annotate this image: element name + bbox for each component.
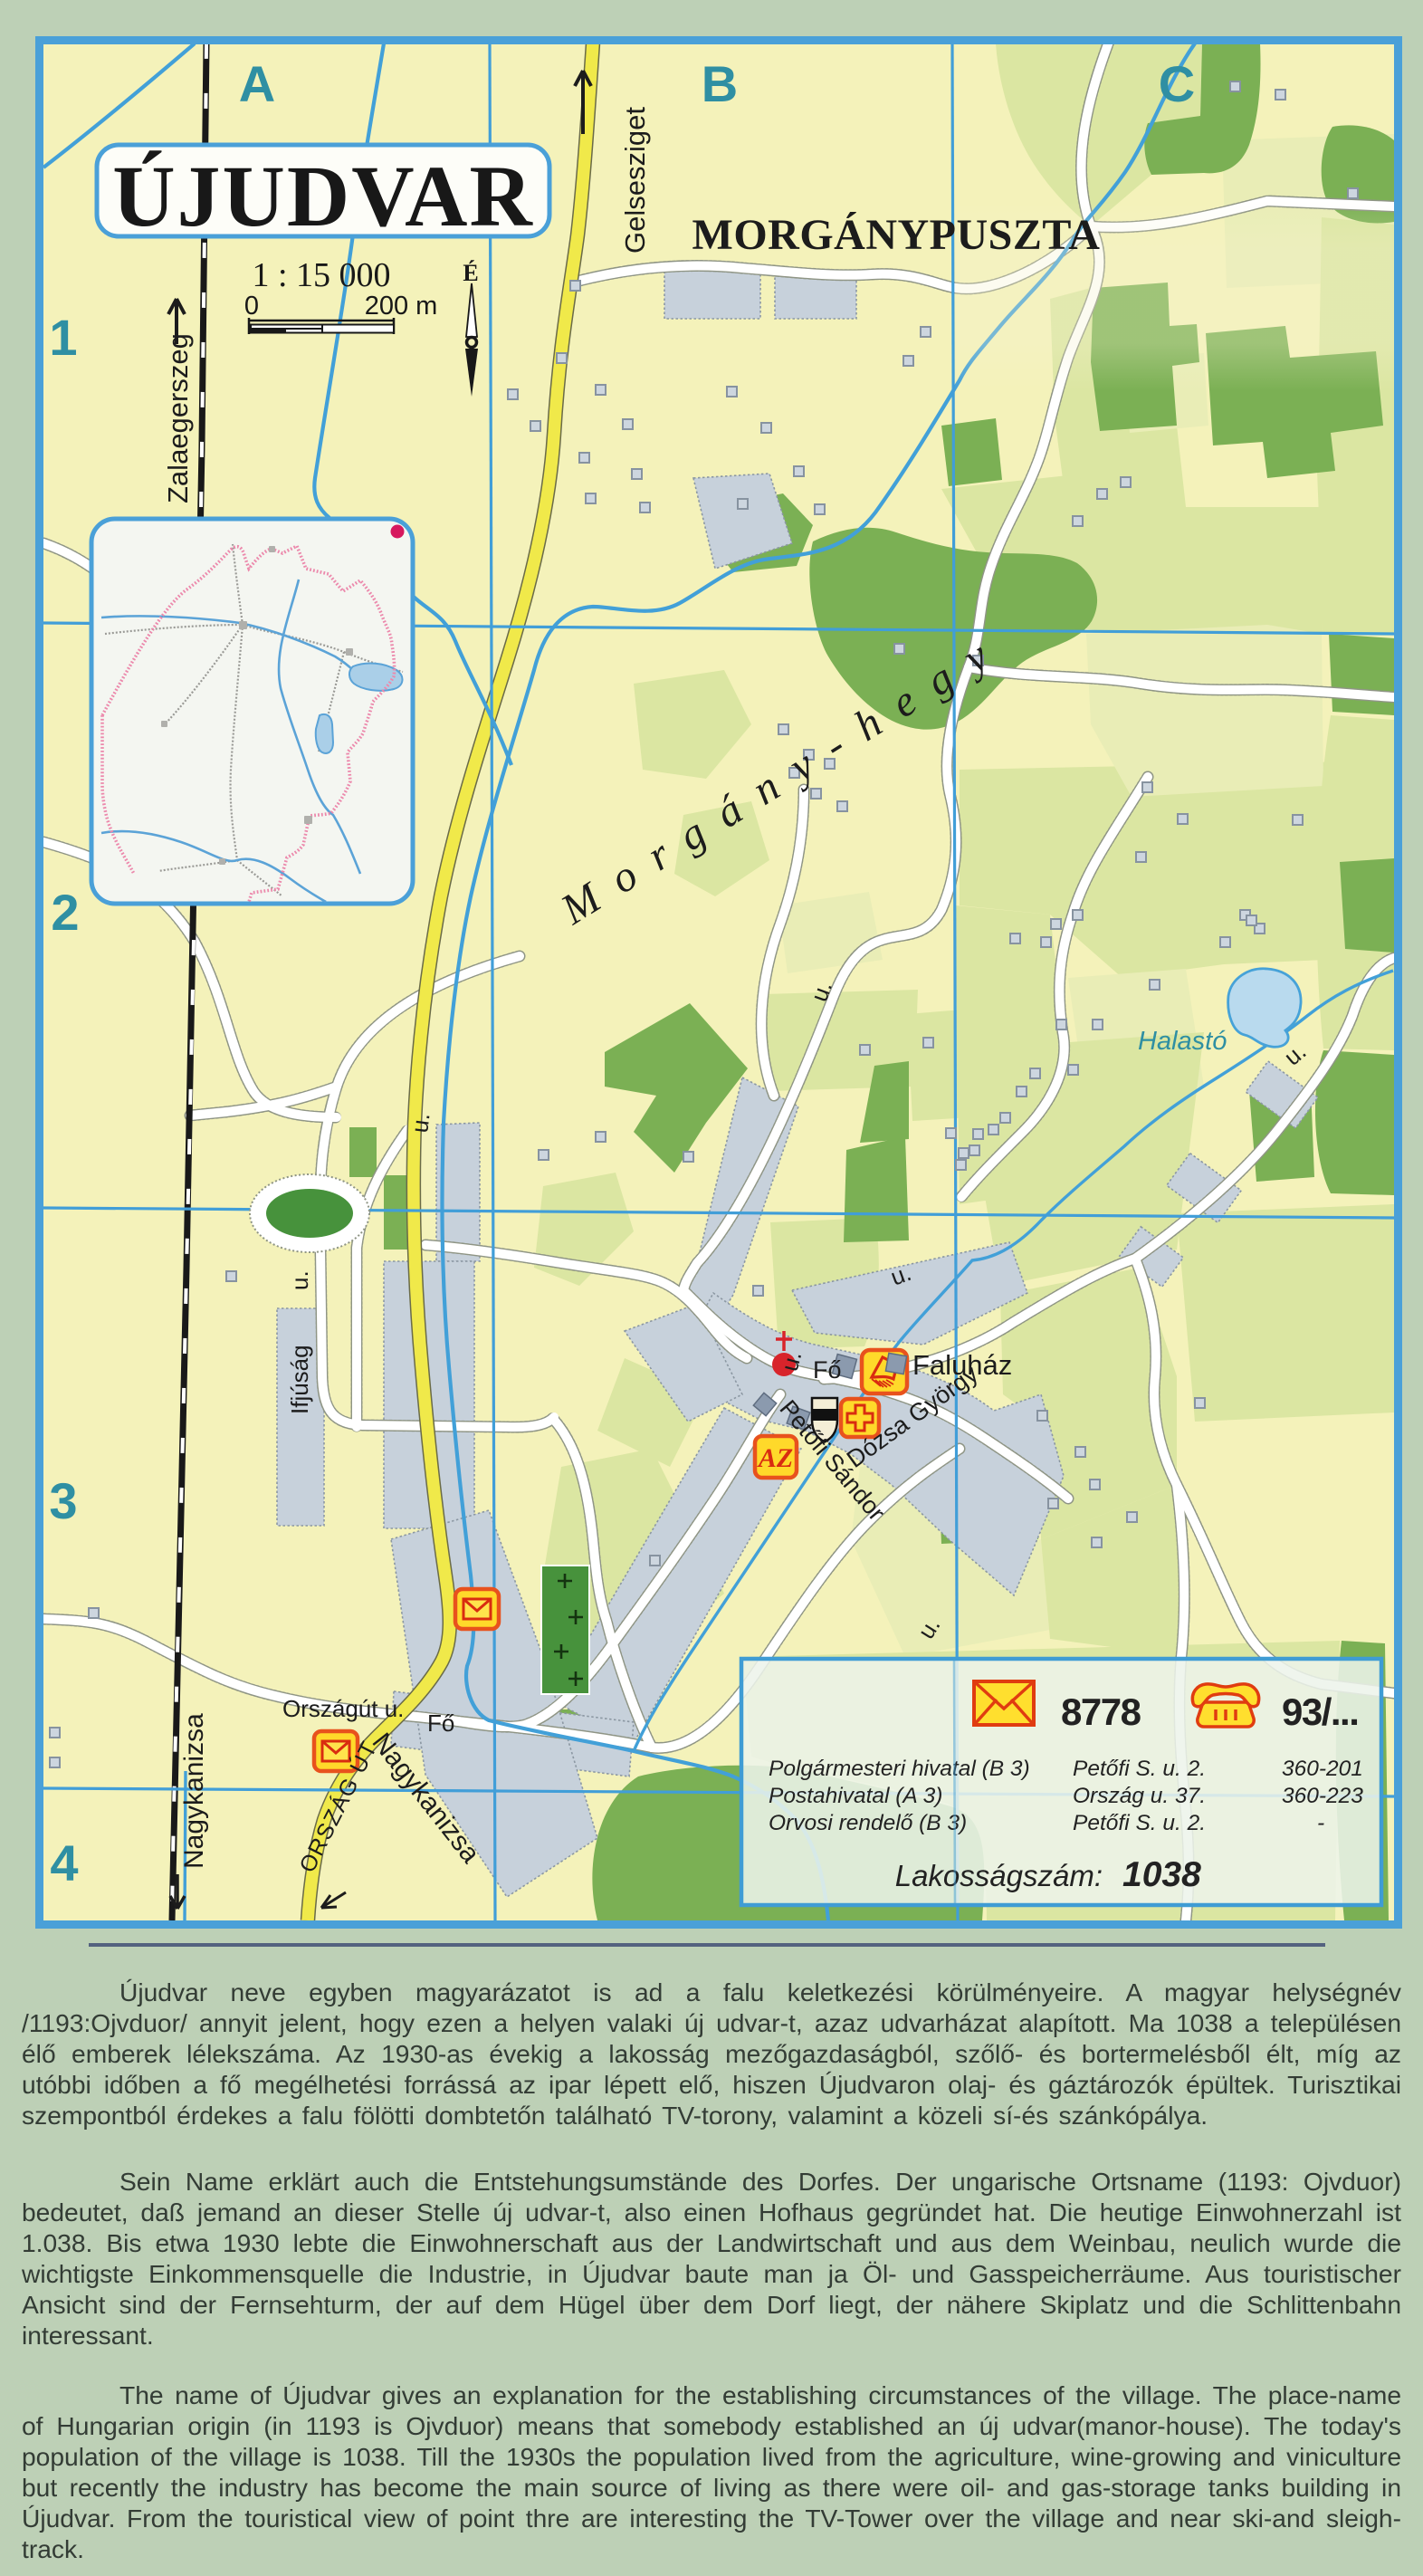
svg-text:Ország u. 37.: Ország u. 37. <box>1073 1784 1206 1808</box>
svg-text:360-223: 360-223 <box>1282 1784 1363 1808</box>
svg-text:8778: 8778 <box>1061 1690 1141 1733</box>
svg-text:0: 0 <box>244 292 259 321</box>
svg-text:360-201: 360-201 <box>1282 1757 1363 1781</box>
svg-text:Zalaegerszeg: Zalaegerszeg <box>162 333 194 503</box>
svg-text:u.: u. <box>286 1270 313 1290</box>
svg-text:Fő: Fő <box>813 1356 842 1384</box>
svg-text:Országút u.: Országút u. <box>282 1695 404 1722</box>
svg-text:Orvosi rendelő (B 3): Orvosi rendelő (B 3) <box>769 1811 967 1835</box>
svg-text:AZ: AZ <box>757 1443 793 1473</box>
svg-text:1: 1 <box>49 309 77 366</box>
svg-text:Polgármesteri hivatal (B 3): Polgármesteri hivatal (B 3) <box>769 1757 1030 1781</box>
svg-text:É: É <box>463 260 478 286</box>
svg-text:Petőfi S. u. 2.: Petőfi S. u. 2. <box>1073 1757 1206 1781</box>
svg-text:Halastó: Halastó <box>1138 1027 1227 1056</box>
svg-text:2: 2 <box>51 884 79 941</box>
svg-text:200 m: 200 m <box>365 292 438 321</box>
svg-text:Gelsesziget: Gelsesziget <box>619 107 651 254</box>
svg-text:ÚJUDVAR: ÚJUDVAR <box>112 148 534 244</box>
svg-text:Nagykanizsa: Nagykanizsa <box>179 1713 209 1869</box>
svg-text:Petőfi S. u. 2.: Petőfi S. u. 2. <box>1073 1811 1206 1835</box>
svg-text:Lakosságszám:: Lakosságszám: <box>895 1859 1103 1892</box>
svg-text:C: C <box>1159 55 1195 112</box>
svg-text:1 : 15 000: 1 : 15 000 <box>252 256 390 294</box>
svg-text:A: A <box>239 55 275 112</box>
svg-text:u.: u. <box>406 1112 435 1135</box>
svg-text:Postahivatal (A 3): Postahivatal (A 3) <box>769 1784 942 1808</box>
svg-text:-: - <box>1317 1811 1324 1835</box>
svg-text:1038: 1038 <box>1122 1855 1201 1894</box>
svg-text:Ifjúság: Ifjúság <box>286 1345 313 1414</box>
svg-text:B: B <box>702 55 738 112</box>
svg-text:MORGÁNYPUSZTA: MORGÁNYPUSZTA <box>692 211 1101 259</box>
svg-text:Fő: Fő <box>427 1709 454 1737</box>
svg-text:3: 3 <box>49 1472 77 1529</box>
svg-text:93/...: 93/... <box>1282 1690 1358 1733</box>
svg-text:4: 4 <box>50 1834 78 1891</box>
